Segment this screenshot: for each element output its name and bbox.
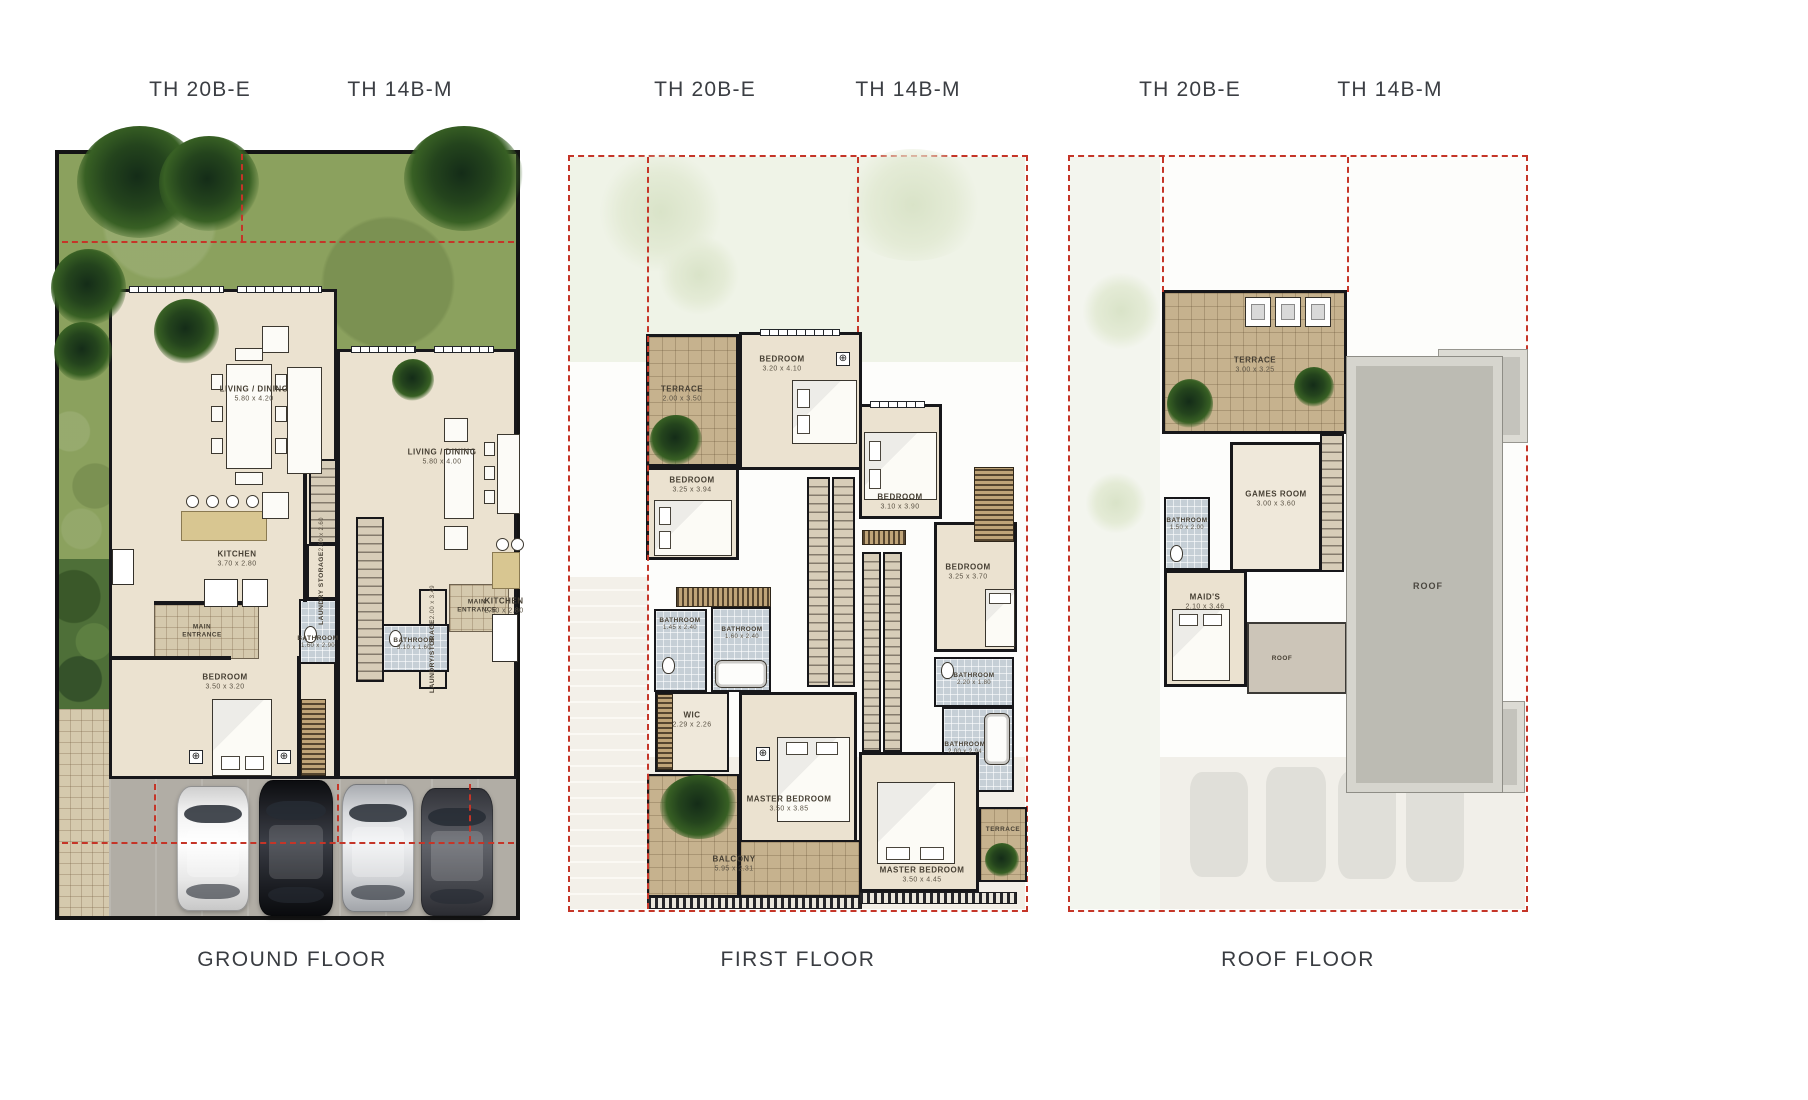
ghost-car [1266, 767, 1326, 882]
staircase [832, 477, 855, 687]
caption-ground-floor: GROUND FLOOR [197, 948, 387, 972]
unit-label-roof-right: TH 14B-M [1337, 78, 1442, 102]
room-label-bathroom: BATHROOM1.60 x 2.90 [297, 635, 338, 651]
ghost-car [1190, 772, 1248, 877]
windshield-icon [428, 808, 485, 826]
plot-boundary-dash [647, 157, 649, 909]
rear-window-icon [268, 887, 324, 903]
armchair-icon [444, 526, 468, 550]
room-name: BATHROOM [1166, 517, 1207, 525]
window-icon [760, 329, 840, 336]
room-dims: 2.10 x 3.46 [1185, 603, 1224, 612]
pillow-icon [816, 742, 838, 755]
room-label-bedroom: BEDROOM3.50 x 3.20 [202, 672, 247, 691]
car-gray [421, 788, 493, 916]
windshield-icon [184, 805, 241, 822]
bed [1172, 609, 1230, 681]
rear-window-icon [430, 889, 485, 904]
pillow-icon [797, 389, 810, 408]
room-name: WIC [672, 710, 711, 720]
faded-tree-icon [1082, 272, 1160, 350]
room-label-terrace: TERRACE [986, 826, 1020, 834]
room-dims: 1.60 x 2.90 [297, 643, 338, 651]
pillow-icon [659, 531, 671, 549]
bar-stool-icon [496, 538, 509, 551]
kitchen-counter [492, 552, 520, 589]
closet [974, 467, 1014, 542]
room-name: BALCONY [712, 854, 755, 864]
faded-tree-icon [838, 149, 988, 261]
terrace-plant-icon [650, 415, 702, 465]
roof-floor-plan: TERRACE3.00 x 3.25 GAMES ROOM3.00 x 3.60… [1068, 155, 1528, 912]
room-label-bedroom: BEDROOM3.10 x 3.90 [877, 492, 922, 511]
toilet-icon [1170, 545, 1183, 562]
pillow-icon [786, 742, 808, 755]
chair-icon [484, 466, 495, 480]
ceiling-fixture-icon: ⊕ [836, 352, 850, 366]
pillow-icon [1203, 614, 1222, 626]
unit-label-first-right: TH 14B-M [855, 78, 960, 102]
plot-boundary-dash [62, 241, 514, 243]
room-dims: 2.20 x 1.80 [953, 680, 994, 688]
bar-stool-icon [206, 495, 219, 508]
room-dims: 3.10 x 3.90 [877, 503, 922, 512]
room-dims: 3.25 x 3.70 [945, 573, 990, 582]
wardrobe [657, 694, 673, 770]
window-icon [434, 346, 494, 353]
room-label-master-bedroom: MASTER BEDROOM3.50 x 3.85 [747, 794, 832, 813]
ceiling-fixture-icon: ⊕ [277, 750, 291, 764]
room-label-maids: MAID'S2.10 x 3.46 [1185, 592, 1224, 611]
room-dims: 3.00 x 3.25 [1234, 366, 1276, 375]
chair-icon [275, 406, 287, 422]
room-name: BATHROOM [393, 637, 434, 645]
wardrobe [862, 530, 906, 545]
room-name: BEDROOM [759, 354, 804, 364]
bed [792, 380, 857, 444]
chair-icon [211, 438, 223, 454]
room-name: ROOF [1413, 581, 1443, 593]
room-label-bedroom: BEDROOM3.25 x 3.94 [669, 475, 714, 494]
pillow-icon [797, 415, 810, 434]
room-dims: 3.50 x 3.20 [202, 683, 247, 692]
window-icon [870, 401, 925, 408]
pillow-icon [869, 469, 881, 489]
hedge [59, 559, 109, 709]
palm-tree-icon [404, 126, 524, 231]
indoor-plant-icon [154, 299, 219, 364]
unit-label-roof-left: TH 20B-E [1139, 78, 1241, 102]
room-name: KITCHEN [217, 549, 256, 559]
wall [303, 454, 307, 602]
room-label-living-dining: LIVING / DINING5.80 x 4.20 [220, 384, 289, 403]
room-dims: 5.95 x 2.31 [712, 865, 755, 874]
terrace-plant-icon [985, 843, 1019, 877]
room-dims: 2.00 x 2.94 [944, 749, 985, 757]
plot-boundary-dash [62, 842, 514, 844]
staircase [862, 552, 881, 752]
bar-stool-icon [511, 538, 524, 551]
outdoor-seat-icon [1275, 297, 1301, 327]
balcony-railing [647, 897, 862, 909]
faded-paving [570, 577, 648, 909]
car-white [177, 786, 249, 911]
window-icon [351, 346, 416, 353]
room-label-bedroom: BEDROOM3.20 x 4.10 [759, 354, 804, 373]
room-label-bathroom: BATHROOM1.60 x 2.40 [721, 626, 762, 642]
pillow-icon [659, 507, 671, 525]
plot-boundary-dash [1347, 157, 1349, 292]
room-label-bedroom: BEDROOM3.25 x 3.70 [945, 562, 990, 581]
plot-boundary-dash [154, 784, 156, 842]
room-name: BATHROOM [659, 617, 700, 625]
terrace-plant-icon [1294, 367, 1334, 407]
roof-slab-main [1347, 357, 1502, 792]
room-label-living-dining: LIVING / DINING5.80 x 4.00 [408, 447, 477, 466]
bed [864, 432, 937, 500]
unit-label-first-left: TH 20B-E [654, 78, 756, 102]
room-name: MAID'S [1185, 592, 1224, 602]
terrace-plant-icon [1167, 379, 1213, 429]
room-dims: 2.00 x 3.50 [661, 395, 703, 404]
room-name: BATHROOM [953, 672, 994, 680]
kitchen-sink [112, 549, 134, 585]
room-dims: 3.50 x 4.45 [880, 876, 965, 885]
car-roof [187, 828, 239, 877]
bed [212, 699, 272, 776]
staircase [356, 517, 384, 682]
room-name: LIVING / DINING [408, 447, 477, 457]
pillow-icon [221, 756, 240, 770]
room-dims: 2.00 x 3.49 [430, 585, 436, 619]
chair-icon [235, 472, 263, 485]
car-roof [431, 831, 483, 881]
room-dims: 3.20 x 4.10 [759, 365, 804, 374]
ceiling-fixture-icon: ⊕ [189, 750, 203, 764]
bush-icon [54, 322, 112, 382]
car-black [259, 780, 333, 916]
chair-icon [275, 438, 287, 454]
car-roof [269, 825, 322, 879]
sofa [287, 367, 322, 474]
floor-plan-sheet: TH 20B-E TH 14B-M TH 20B-E TH 14B-M TH 2… [0, 0, 1808, 1100]
room-label-bathroom: BATHROOM2.00 x 2.94 [944, 741, 985, 757]
room-dims: 1.50 x 2.00 [1166, 525, 1207, 533]
plot-boundary-dash [469, 784, 471, 842]
room-label-laundry-storage: LAUNDRY STORAGE2.00 x 2.60 [313, 517, 331, 625]
plot-boundary-dash [337, 784, 339, 842]
room-name: ROOF [1272, 655, 1292, 663]
room-name: BATHROOM [721, 626, 762, 634]
outdoor-seat-icon [1305, 297, 1331, 327]
room-label-bathroom: BATHROOM2.20 x 1.80 [953, 672, 994, 688]
room-dims: 2.00 x 2.60 [319, 517, 325, 551]
room-dims: 3.70 x 2.80 [217, 560, 256, 569]
plot-boundary-dash [857, 157, 859, 332]
window-icon [237, 286, 322, 293]
bar-stool-icon [246, 495, 259, 508]
pillow-icon [1179, 614, 1198, 626]
chair-icon [484, 442, 495, 456]
car-roof [352, 827, 404, 877]
bed [877, 782, 955, 864]
room-label-bathroom: BATHROOM1.50 x 2.00 [1166, 517, 1207, 533]
chair-icon [211, 406, 223, 422]
bathtub-icon [984, 713, 1010, 765]
room-label-master-bedroom: MASTER BEDROOM3.50 x 4.45 [880, 865, 965, 884]
room-dims: 1.45 x 2.40 [659, 625, 700, 633]
room-name: GAMES ROOM [1245, 489, 1306, 499]
room-dims: 3.50 x 3.85 [747, 805, 832, 814]
room-name: MAIN ENTRANCE [175, 624, 229, 641]
palm-tree-icon [159, 136, 259, 231]
lower-roof [1247, 622, 1347, 694]
room-label-terrace: TERRACE2.00 x 3.50 [661, 384, 703, 403]
toilet-icon [941, 662, 954, 679]
dining-table [226, 364, 272, 469]
room-dims: 3.25 x 3.94 [669, 486, 714, 495]
room-label-kitchen: KITCHEN3.70 x 2.80 [217, 549, 256, 568]
room-label-games-room: GAMES ROOM3.00 x 3.60 [1245, 489, 1306, 508]
room-name: TERRACE [1234, 355, 1276, 365]
rear-window-icon [351, 885, 406, 900]
kitchen-appliances [492, 614, 518, 662]
room-label-bathroom: BATHROOM3.10 x 1.60 [393, 637, 434, 653]
room-label-balcony: BALCONY5.95 x 2.31 [712, 854, 755, 873]
room-dims: 2.29 x 2.26 [672, 721, 711, 730]
windshield-icon [266, 801, 325, 820]
rear-window-icon [186, 884, 241, 899]
staircase [1320, 434, 1344, 572]
room-dims: 3.00 x 3.60 [1245, 500, 1306, 509]
pillow-icon [886, 847, 910, 860]
indoor-plant-icon [392, 359, 434, 401]
room-label-main-entrance: MAIN ENTRANCE [450, 599, 504, 616]
armchair-icon [262, 492, 289, 519]
plot-boundary-dash [241, 154, 243, 241]
room-name: LAUNDRY/STORAGE [429, 619, 436, 693]
faded-tree-icon [658, 235, 740, 315]
balcony-plant-icon [660, 775, 738, 839]
bar-stool-icon [226, 495, 239, 508]
bed [985, 589, 1015, 647]
windshield-icon [349, 804, 406, 822]
room-name: LAUNDRY STORAGE [318, 551, 325, 625]
first-floor-plan: ⊕ ⊕ [568, 155, 1028, 912]
room-name: BEDROOM [877, 492, 922, 502]
chair-icon [235, 348, 263, 361]
stove [204, 579, 238, 607]
room-label-roof: ROOF [1413, 581, 1443, 593]
room-name: MAIN ENTRANCE [450, 599, 504, 616]
room-label-main-entrance: MAIN ENTRANCE [175, 624, 229, 641]
room-label-roof: ROOF [1272, 655, 1292, 663]
pillow-icon [869, 441, 881, 461]
plot-boundary-dash [1162, 157, 1164, 292]
wardrobe [301, 699, 326, 776]
pillow-icon [989, 593, 1011, 604]
caption-first-floor: FIRST FLOOR [721, 948, 876, 972]
stone-path [59, 709, 109, 916]
room-name: LIVING / DINING [220, 384, 289, 394]
wall [109, 656, 231, 660]
ceiling-fixture-icon: ⊕ [756, 747, 770, 761]
faded-tree-icon [1085, 472, 1147, 534]
room-dims: 1.60 x 2.40 [721, 634, 762, 642]
room-name: BEDROOM [669, 475, 714, 485]
window-icon [129, 286, 224, 293]
armchair-icon [444, 418, 468, 442]
caption-roof-floor: ROOF FLOOR [1221, 948, 1375, 972]
room-label-bathroom: BATHROOM1.45 x 2.40 [659, 617, 700, 633]
room-name: MASTER BEDROOM [880, 865, 965, 875]
armchair-icon [262, 326, 289, 353]
kitchen-counter [181, 511, 267, 541]
staircase [883, 552, 902, 752]
fridge [242, 579, 268, 607]
dining-table [497, 434, 520, 514]
garden-grass-side [59, 369, 109, 564]
pillow-icon [245, 756, 264, 770]
room-name: BATHROOM [297, 635, 338, 643]
room-dims: 5.80 x 4.00 [408, 458, 477, 467]
room-name: MASTER BEDROOM [747, 794, 832, 804]
balcony [739, 840, 862, 897]
toilet-icon [662, 657, 675, 674]
bed [654, 500, 732, 556]
room-name: BEDROOM [202, 672, 247, 682]
balcony-railing [859, 892, 1017, 904]
bathtub-icon [715, 660, 767, 688]
bar-stool-icon [186, 495, 199, 508]
room-name: TERRACE [986, 826, 1020, 834]
room-label-terrace: TERRACE3.00 x 3.25 [1234, 355, 1276, 374]
chair-icon [484, 490, 495, 504]
room-name: TERRACE [661, 384, 703, 394]
unit-label-ground-right: TH 14B-M [347, 78, 452, 102]
ground-floor-plan: ⊕ ⊕ [55, 150, 520, 920]
room-name: BATHROOM [944, 741, 985, 749]
room-dims: 5.80 x 4.20 [220, 395, 289, 404]
staircase [807, 477, 830, 687]
room-name: BEDROOM [945, 562, 990, 572]
room-label-wic: WIC2.29 x 2.26 [672, 710, 711, 729]
unit-label-ground-left: TH 20B-E [149, 78, 251, 102]
wardrobe [676, 587, 771, 607]
car-silver [342, 784, 414, 912]
pillow-icon [920, 847, 944, 860]
bush-icon [51, 249, 126, 327]
room-dims: 3.10 x 1.60 [393, 645, 434, 653]
outdoor-seat-icon [1245, 297, 1271, 327]
